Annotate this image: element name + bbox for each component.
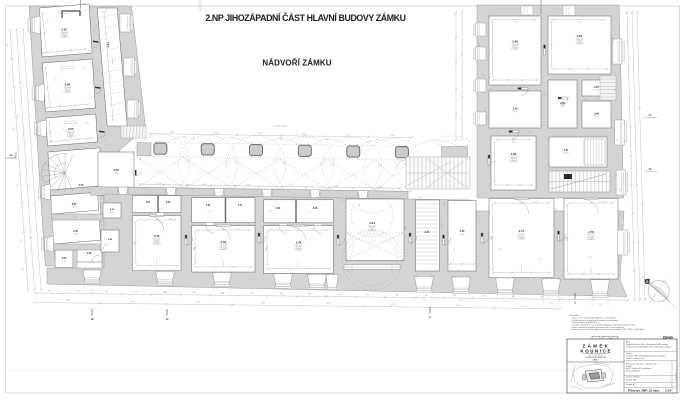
svg-text:+4,850: +4,850 [589, 239, 594, 241]
svg-text:2.39: 2.39 [296, 241, 302, 245]
svg-text:1 550: 1 550 [422, 299, 426, 301]
svg-text:920: 920 [7, 43, 9, 46]
svg-text:305: 305 [583, 15, 586, 17]
svg-text:1 550: 1 550 [549, 302, 553, 304]
svg-text:920: 920 [13, 127, 15, 130]
svg-text:920: 920 [22, 267, 24, 270]
svg-text:+4,850: +4,850 [296, 249, 301, 251]
svg-text:1 915: 1 915 [490, 19, 494, 21]
svg-text:12,1 m2: 12,1 m2 [560, 106, 565, 108]
svg-text:4 125: 4 125 [66, 300, 70, 302]
svg-text:6 850: 6 850 [134, 241, 136, 245]
svg-text:9,1 m2: 9,1 m2 [460, 234, 464, 236]
svg-text:2.60: 2.60 [512, 40, 518, 44]
svg-text:3 410: 3 410 [158, 209, 162, 211]
svg-text:Zámek: Zámek [663, 336, 674, 340]
svg-text:1 915: 1 915 [158, 183, 162, 185]
svg-text:Akce:: Akce: [626, 341, 631, 344]
svg-text:305: 305 [497, 132, 500, 134]
svg-text:1 550: 1 550 [503, 301, 507, 303]
svg-text:1 915: 1 915 [292, 199, 296, 201]
svg-text:4,25 x 6,80: 4,25 x 6,80 [153, 239, 161, 241]
svg-text:3 410: 3 410 [543, 94, 547, 96]
svg-text:520: 520 [341, 200, 344, 202]
svg-text:1 550: 1 550 [459, 300, 463, 302]
svg-text:1 250: 1 250 [477, 213, 479, 217]
svg-text:760: 760 [584, 99, 587, 101]
svg-text:Formát: A1: Formát: A1 [626, 383, 635, 386]
svg-text:1 250: 1 250 [73, 217, 77, 219]
svg-text:3 260: 3 260 [513, 22, 517, 24]
svg-text:4 125: 4 125 [391, 304, 395, 306]
svg-text:+4,850: +4,850 [155, 243, 160, 245]
svg-text:2.67: 2.67 [594, 86, 599, 89]
svg-text:1 250: 1 250 [498, 249, 502, 251]
svg-text:2.45: 2.45 [154, 234, 160, 238]
svg-text:1 915: 1 915 [268, 211, 272, 213]
svg-text:585: 585 [483, 296, 486, 298]
svg-text:4 125: 4 125 [131, 301, 135, 303]
svg-text:585: 585 [280, 293, 283, 295]
svg-text:1 915: 1 915 [246, 185, 250, 187]
svg-text:900: 900 [405, 227, 407, 230]
svg-text:4,25 x 6,80: 4,25 x 6,80 [510, 156, 518, 158]
svg-text:150: 150 [47, 19, 49, 22]
svg-text:2 445: 2 445 [131, 218, 133, 222]
svg-text:85: 85 [519, 89, 521, 91]
svg-text:2.34: 2.34 [369, 221, 375, 225]
svg-text:1 250: 1 250 [378, 165, 382, 167]
svg-text:4,25 x 6,80: 4,25 x 6,80 [67, 131, 75, 133]
svg-text:585: 585 [193, 292, 196, 294]
svg-text:760: 760 [245, 198, 248, 200]
svg-text:7,2 m2: 7,2 m2 [114, 173, 118, 175]
svg-text:12,1 m2: 12,1 m2 [512, 111, 517, 113]
svg-text:2.43: 2.43 [206, 204, 211, 207]
svg-text:585: 585 [309, 294, 312, 296]
svg-text:1 915: 1 915 [334, 186, 338, 188]
svg-text:4,25 x 6,80: 4,25 x 6,80 [576, 38, 584, 40]
svg-text:760: 760 [620, 214, 622, 217]
svg-text:2.74: 2.74 [519, 229, 525, 233]
svg-text:585: 585 [48, 290, 51, 292]
svg-text:4,25 x 6,80: 4,25 x 6,80 [518, 234, 526, 236]
svg-text:ZÁMKU: ZÁMKU [592, 359, 599, 362]
svg-text:6 850: 6 850 [265, 248, 267, 252]
svg-text:4 125: 4 125 [326, 303, 330, 305]
svg-text:4 330: 4 330 [346, 134, 350, 136]
svg-text:+4,850: +4,850 [519, 238, 524, 240]
svg-text:+4,850: +4,850 [513, 48, 518, 50]
svg-text:2.48: 2.48 [87, 252, 92, 255]
svg-text:305: 305 [419, 197, 422, 199]
svg-text:4 120: 4 120 [528, 132, 532, 134]
svg-text:1 915: 1 915 [290, 185, 294, 187]
svg-text:12,1 m2: 12,1 m2 [594, 116, 599, 118]
svg-text:3 260: 3 260 [578, 22, 582, 24]
svg-text:585: 585 [77, 291, 80, 293]
svg-text:2.46: 2.46 [166, 201, 171, 204]
svg-text:2 100: 2 100 [444, 203, 446, 207]
svg-text:1 915: 1 915 [479, 43, 481, 47]
svg-text:2.41: 2.41 [238, 204, 243, 207]
svg-text:920: 920 [20, 239, 22, 242]
svg-text:1 550: 1 550 [90, 290, 94, 292]
svg-text:150: 150 [615, 89, 617, 92]
svg-text:150: 150 [333, 227, 335, 230]
svg-text:2.31: 2.31 [425, 231, 430, 234]
svg-text:2 100: 2 100 [58, 189, 62, 191]
svg-text:920: 920 [11, 99, 13, 102]
svg-text:2.42: 2.42 [221, 240, 227, 244]
svg-text:2.69: 2.69 [511, 152, 517, 156]
svg-text:900: 900 [283, 163, 286, 165]
svg-text:585: 585 [454, 295, 457, 297]
svg-text:4 125: 4 125 [261, 302, 265, 304]
svg-text:900: 900 [51, 49, 53, 52]
svg-text:305: 305 [139, 159, 142, 161]
svg-text:2.65: 2.65 [560, 102, 565, 105]
svg-text:6 850: 6 850 [193, 247, 195, 251]
svg-text:585: 585 [396, 295, 399, 297]
svg-text:585: 585 [135, 291, 138, 293]
svg-text:920: 920 [17, 183, 19, 186]
svg-text:4,25 x 6,80: 4,25 x 6,80 [220, 244, 228, 246]
svg-text:150: 150 [442, 224, 444, 227]
svg-text:6 850: 6 850 [566, 237, 568, 241]
svg-text:o k r e s V y š k o v: o k r e s V y š k o v [588, 353, 602, 356]
svg-text:2.49: 2.49 [113, 168, 119, 172]
svg-text:150: 150 [235, 162, 238, 164]
svg-text:1b: 1b [90, 317, 94, 321]
svg-text:150: 150 [109, 199, 112, 201]
svg-text:+4,850: +4,850 [62, 36, 67, 38]
svg-text:4 120: 4 120 [255, 223, 257, 227]
svg-text:2.50: 2.50 [73, 230, 78, 233]
svg-text:4 330: 4 330 [170, 132, 174, 134]
svg-text:6 850: 6 850 [491, 236, 493, 240]
svg-text:4,25 x 6,80: 4,25 x 6,80 [511, 44, 519, 46]
svg-text:a dokumentace stávajícího stav: a dokumentace stávajícího stavu, 2.NP hl… [626, 346, 671, 349]
svg-text:5,1 m2: 5,1 m2 [62, 261, 66, 263]
svg-text:4 125: 4 125 [196, 302, 200, 304]
svg-text:900: 900 [539, 259, 542, 261]
svg-text:900: 900 [119, 237, 121, 240]
svg-text:585: 585 [164, 292, 167, 294]
svg-text:1c: 1c [165, 317, 169, 321]
svg-text:2.63: 2.63 [513, 108, 518, 111]
svg-text:585: 585 [338, 294, 341, 296]
svg-text:NÁDVOŘÍ ZÁMKU: NÁDVOŘÍ ZÁMKU [262, 58, 331, 67]
svg-text:5 420: 5 420 [82, 68, 86, 70]
svg-text:585: 585 [106, 291, 109, 293]
svg-text:Půdorys 2NP, JZ část: Půdorys 2NP, JZ část [628, 388, 659, 392]
svg-text:305: 305 [181, 224, 183, 227]
svg-text:585: 585 [425, 295, 428, 297]
svg-text:1 915: 1 915 [378, 187, 382, 189]
svg-text:2.64: 2.64 [577, 34, 583, 38]
svg-text:zaměřeno: červenec 2004; výško: zaměřeno: červenec 2004; výškové kóty vz… [571, 328, 645, 331]
svg-text:585: 585 [367, 294, 370, 296]
svg-text:zámku - stávající stav: zámku - stávající stav [626, 357, 644, 360]
svg-text:2.38: 2.38 [313, 208, 318, 210]
svg-text:4 120: 4 120 [603, 201, 607, 203]
svg-text:4 120: 4 120 [186, 161, 190, 163]
svg-text:1 250: 1 250 [488, 89, 492, 91]
svg-text:4 125: 4 125 [521, 306, 525, 308]
svg-text:585: 585 [512, 296, 515, 298]
svg-text:2.46: 2.46 [62, 257, 67, 260]
svg-text:2.NP JIHOZÁPADNÍ ČÁST HLAVNÍ B: 2.NP JIHOZÁPADNÍ ČÁST HLAVNÍ BUDOVY ZÁMK… [205, 12, 405, 23]
svg-text:3 410: 3 410 [196, 197, 200, 199]
svg-text:85: 85 [149, 195, 151, 197]
svg-text:4 330: 4 330 [258, 133, 262, 135]
svg-text:2 445: 2 445 [485, 108, 487, 112]
svg-text:18,3 m2: 18,3 m2 [563, 153, 568, 155]
svg-text:520: 520 [309, 212, 312, 214]
svg-text:6 x 4 850 = 29 100: 6 x 4 850 = 29 100 [273, 126, 287, 128]
svg-text:12,1 m2: 12,1 m2 [594, 90, 599, 92]
svg-text:+4,850: +4,850 [69, 136, 74, 138]
svg-text:4,25 x 6,80: 4,25 x 6,80 [64, 87, 72, 89]
svg-text:8,4 m2: 8,4 m2 [72, 206, 76, 208]
svg-text:2 100: 2 100 [620, 188, 622, 192]
svg-text:585: 585 [251, 293, 254, 295]
svg-text:2.55: 2.55 [68, 127, 74, 131]
svg-text:4 120: 4 120 [454, 248, 456, 252]
svg-text:+4,850: +4,850 [577, 43, 582, 45]
svg-text:2 445: 2 445 [550, 19, 554, 21]
svg-text:2 100: 2 100 [330, 164, 334, 166]
svg-text:Stupeň: SHP: Stupeň: SHP [626, 378, 638, 381]
svg-text:2 445: 2 445 [359, 203, 361, 207]
svg-text:2 100: 2 100 [588, 257, 592, 259]
svg-text:4 120: 4 120 [236, 228, 240, 230]
svg-text:3,9 m2: 3,9 m2 [110, 211, 114, 213]
svg-text:85: 85 [79, 241, 81, 243]
svg-text:Zodp. projektant:: Zodp. projektant: [626, 370, 641, 373]
svg-text:+4,850: +4,850 [65, 91, 70, 93]
svg-text:+4,850: +4,850 [511, 161, 516, 163]
svg-text:4 120: 4 120 [169, 218, 173, 220]
svg-text:520: 520 [483, 74, 485, 77]
svg-text:4 125: 4 125 [456, 305, 460, 307]
svg-text:920: 920 [9, 71, 11, 74]
svg-text:3 260: 3 260 [512, 142, 516, 144]
svg-text:760: 760 [94, 29, 96, 32]
svg-text:2.58: 2.58 [65, 83, 71, 87]
svg-text:2.66: 2.66 [594, 113, 599, 116]
svg-text:8,4 m2: 8,4 m2 [73, 233, 77, 235]
svg-text:2.52: 2.52 [72, 203, 77, 206]
svg-text:4 330: 4 330 [214, 132, 218, 134]
svg-text:2.79: 2.79 [460, 230, 465, 233]
svg-text:585: 585 [541, 296, 544, 298]
svg-text:K O U N I C E: K O U N I C E [580, 348, 610, 353]
svg-text:2.44: 2.44 [146, 201, 151, 204]
svg-text:4 330: 4 330 [390, 135, 394, 137]
svg-text:1 915: 1 915 [202, 184, 206, 186]
svg-text:4 120: 4 120 [613, 38, 615, 42]
svg-text:4,25 x 6,80: 4,25 x 6,80 [60, 32, 68, 34]
svg-text:3 410: 3 410 [556, 208, 558, 212]
svg-text:2.76: 2.76 [588, 230, 594, 234]
svg-text:585: 585 [222, 293, 225, 295]
svg-text:4,25 x 6,80: 4,25 x 6,80 [295, 245, 303, 247]
svg-text:760: 760 [209, 211, 212, 213]
svg-text:+4,850: +4,850 [221, 249, 226, 251]
svg-text:2.24: 2.24 [665, 388, 671, 392]
svg-text:85: 85 [488, 209, 490, 211]
svg-text:4,25 x 6,80: 4,25 x 6,80 [587, 234, 595, 236]
svg-text:4 120: 4 120 [311, 228, 315, 230]
svg-text:520: 520 [101, 111, 103, 114]
svg-text:4 330: 4 330 [302, 134, 306, 136]
svg-text:920: 920 [18, 211, 20, 214]
svg-text:4 120: 4 120 [534, 201, 538, 203]
svg-text:900: 900 [617, 139, 619, 142]
svg-text:4,25 x 6,80: 4,25 x 6,80 [368, 225, 376, 227]
svg-text:2.57: 2.57 [61, 28, 67, 32]
svg-text:Poznámka:: Poznámka: [569, 315, 580, 317]
svg-text:2.40: 2.40 [276, 207, 281, 210]
svg-text:1 550: 1 550 [598, 304, 602, 306]
svg-text:5 420: 5 420 [85, 123, 89, 125]
svg-text:2.71: 2.71 [564, 149, 569, 152]
svg-text:Datum: 07/2004: Datum: 07/2004 [626, 376, 639, 379]
svg-text:520: 520 [519, 15, 522, 17]
svg-text:2.53: 2.53 [79, 184, 84, 187]
